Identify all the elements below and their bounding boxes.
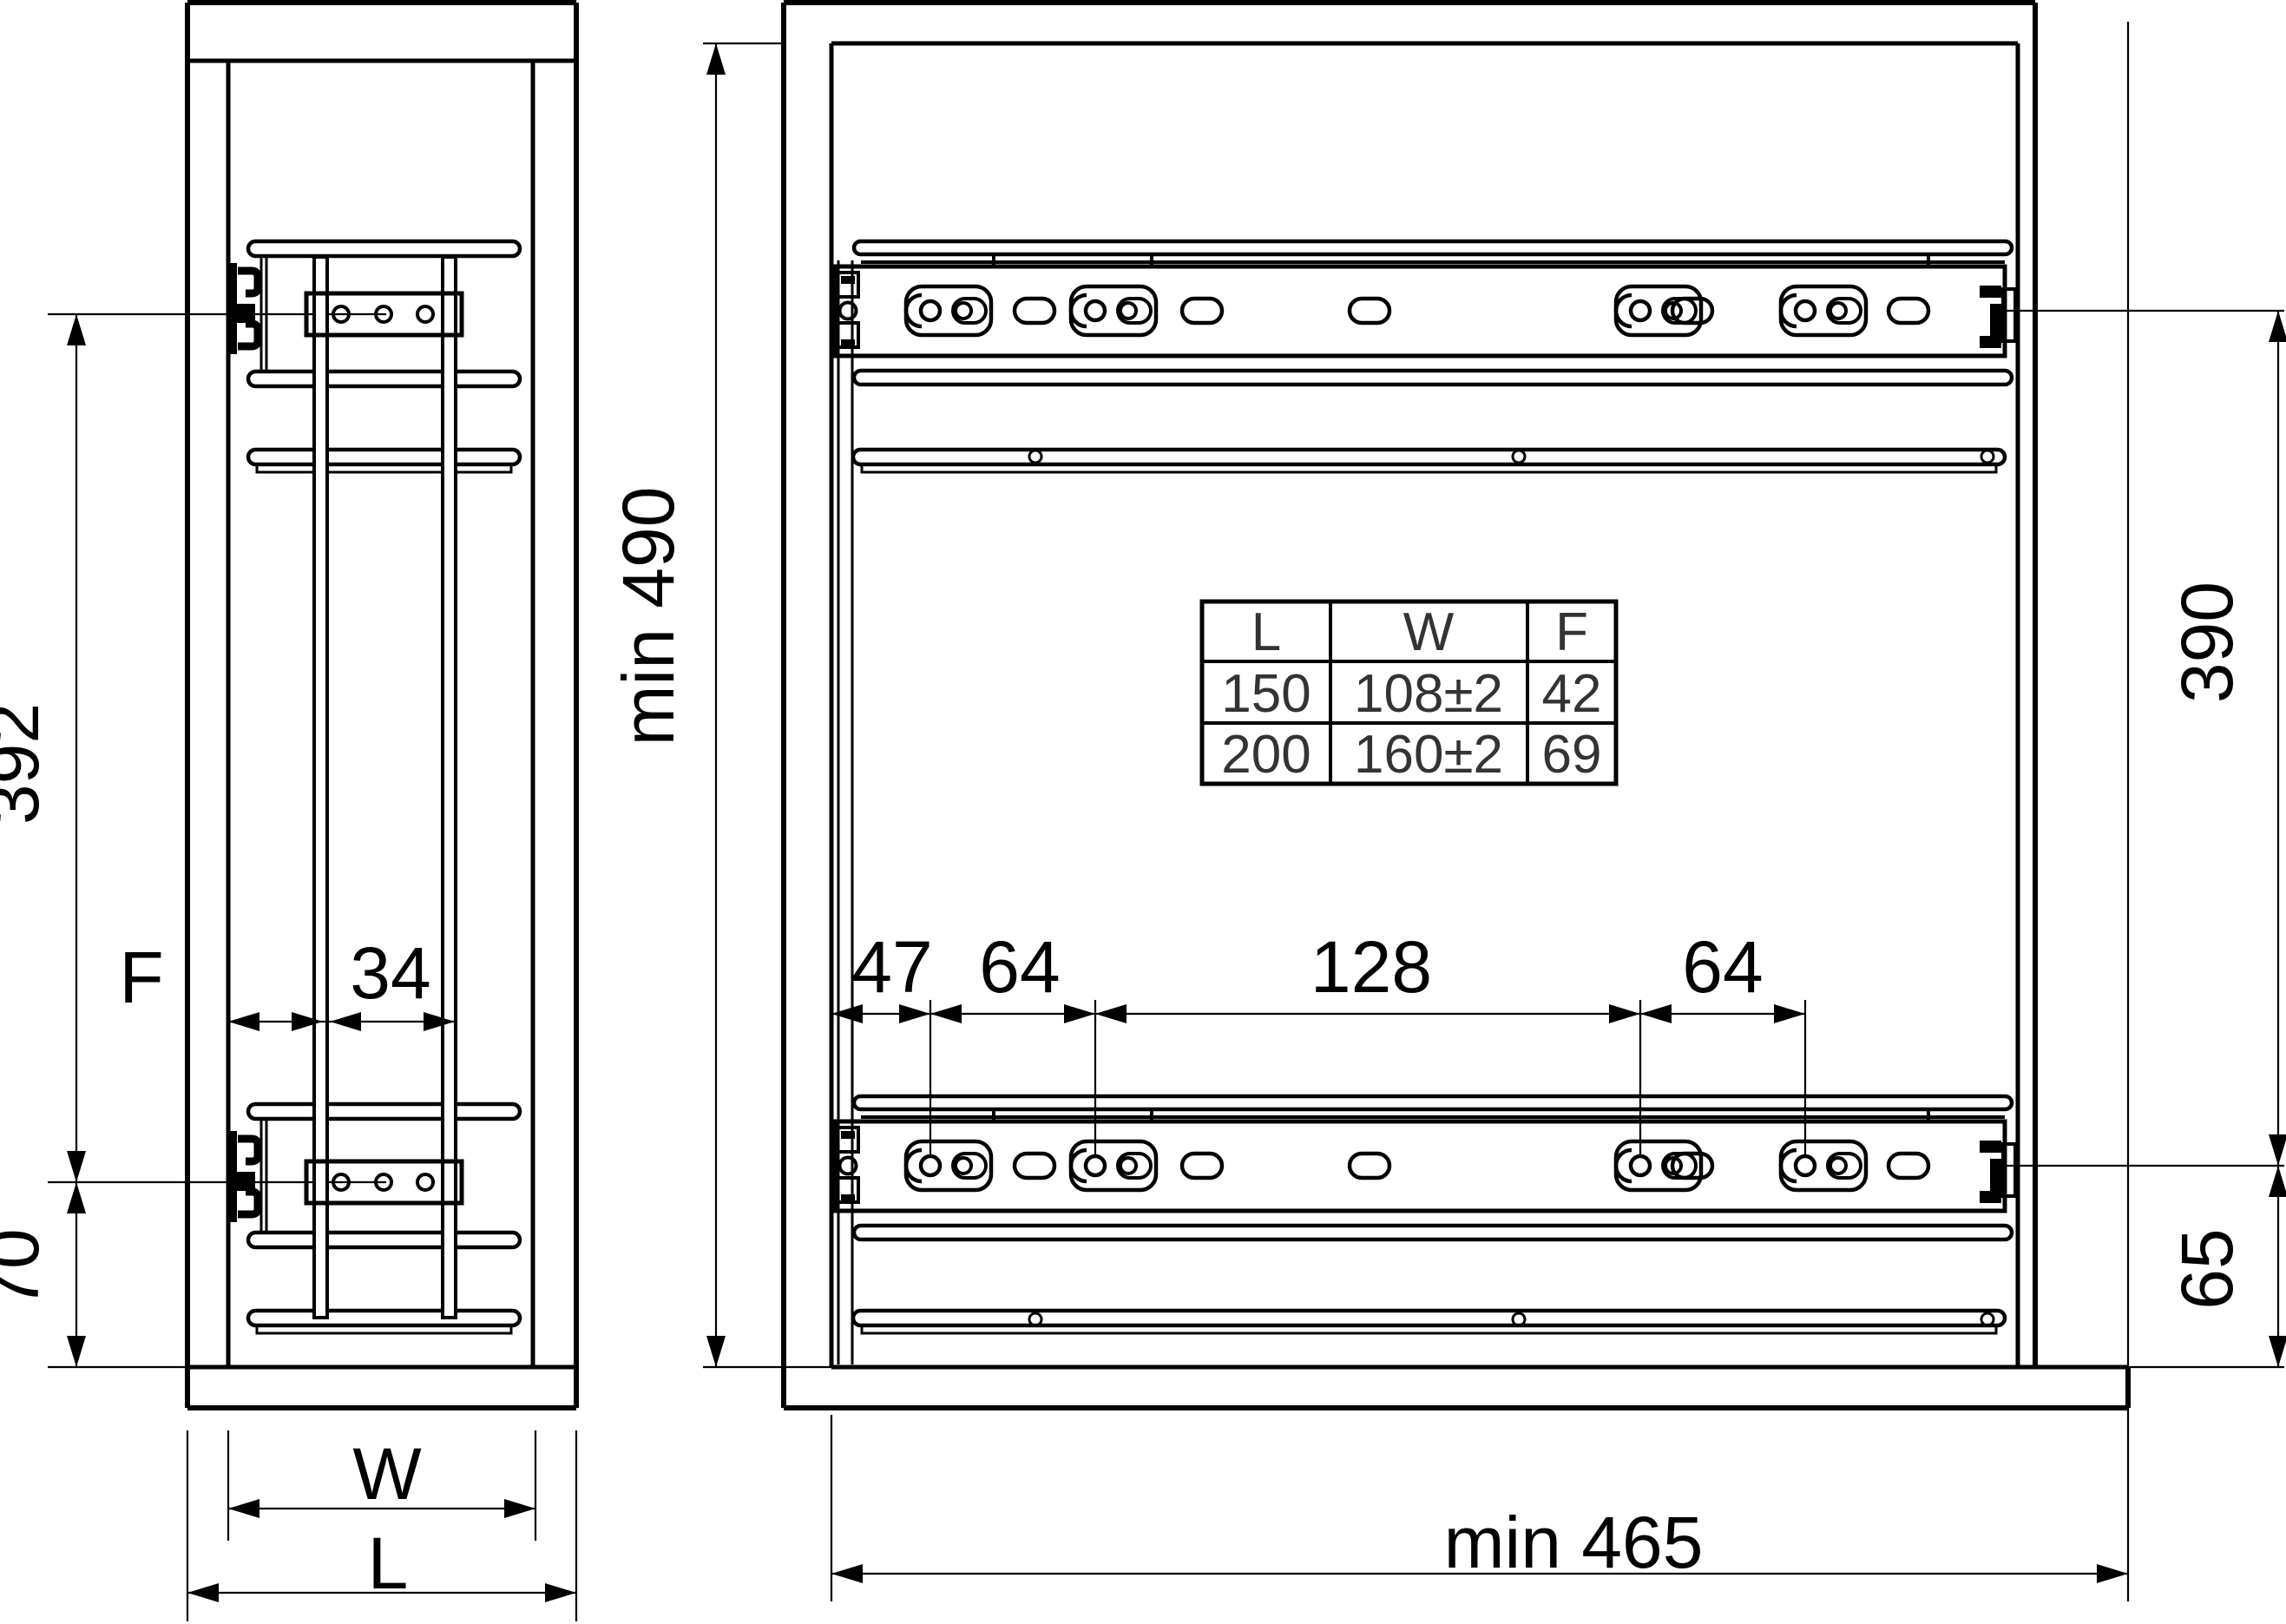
drawing-canvas: 392 70 F 34 W L (0, 0, 2286, 1624)
technical-drawing-page: 392 70 F 34 W L (0, 0, 2286, 1624)
table-cell-f-69: 69 (1542, 725, 1602, 785)
table-header-l: L (1251, 602, 1281, 662)
table-cell-w-160: 160±2 (1354, 725, 1503, 785)
dim-l-label: L (368, 1522, 409, 1604)
dim-70-label: 70 (0, 1228, 54, 1309)
dim-w-label: W (352, 1433, 421, 1515)
dim-65-label: 65 (2166, 1228, 2248, 1309)
table-cell-f-42: 42 (1542, 664, 1602, 724)
table-header-w: W (1403, 602, 1455, 662)
background (0, 0, 2286, 1624)
dim-34-label: 34 (350, 932, 430, 1014)
dim-min-465-label: min 465 (1444, 1502, 1704, 1583)
dim-f-label: F (119, 937, 163, 1018)
table-cell-w-108: 108±2 (1354, 664, 1503, 724)
table-cell-l-150: 150 (1221, 664, 1311, 724)
dim-64-second-label: 64 (1682, 926, 1763, 1008)
dim-47-label: 47 (851, 926, 932, 1008)
frame-bar (314, 257, 327, 1318)
table-cell-l-200: 200 (1221, 725, 1311, 785)
dim-390-label: 390 (2166, 582, 2248, 703)
dim-392-label: 392 (0, 703, 54, 825)
frame-bar (443, 257, 456, 1318)
table-header-f: F (1555, 602, 1588, 662)
dim-64-first-label: 64 (979, 926, 1060, 1008)
dim-128-label: 128 (1311, 926, 1432, 1008)
dim-min-490-label: min 490 (608, 487, 689, 746)
